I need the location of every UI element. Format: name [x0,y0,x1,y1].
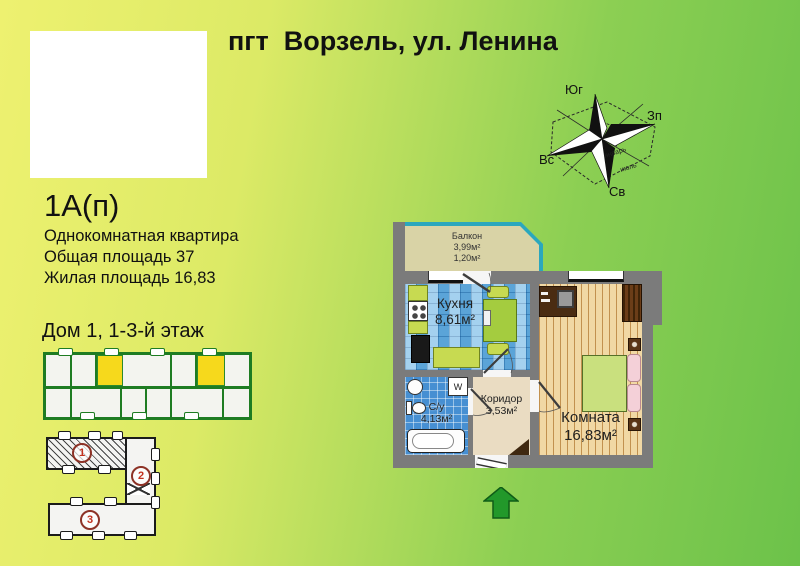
site-entrance [58,431,71,440]
schematic-wall [70,355,72,417]
schematic-balcony [80,412,95,420]
compass-rose: Юг Зп Вс Св январь июль [535,72,670,207]
apartment-total-area: Общая площадь 37 [44,247,239,268]
logo-area [30,31,207,178]
site-entrance [62,465,75,474]
schematic-balcony [58,348,73,356]
site-entrance [112,431,123,440]
apartment-living-area: Жилая площадь 16,83 [44,268,239,289]
site-entrance [60,531,73,540]
balcony-area-1: 3,99м² [405,242,529,253]
site-entrance [70,497,83,506]
site-entrance [104,497,117,506]
apartment-plan: Кухня 8,61м² С/у 4,13м² [393,271,662,468]
schematic-wall [170,355,172,417]
site-entrance [98,465,111,474]
schematic-balcony [202,348,217,356]
compass-month-jul: июль [619,162,637,174]
site-entrance [151,448,160,461]
schematic-wall [46,386,249,389]
house-floor-label: Дом 1, 1-3-й этаж [42,320,204,343]
balcony-left-wall [393,222,405,274]
schematic-balcony [104,348,119,356]
balcony-area-2: 1,20м² [405,253,529,264]
site-entrance [88,431,101,440]
apartment-code: 1А(п) [44,188,119,224]
site-block-number-3: 3 [80,510,100,530]
site-block-number-1: 1 [72,443,92,463]
site-entrance [151,496,160,509]
schematic-balcony [132,412,147,420]
highlighted-apartment-2 [197,355,225,386]
schematic-balcony [184,412,199,420]
balcony-name: Балкон [405,231,529,242]
schematic-balcony [150,348,165,356]
entrance-arrow [483,487,519,519]
flyer-page: пгт Ворзель, ул. Ленина 1А(п) Однокомнат… [0,0,800,566]
door-swings [393,271,662,468]
building-floor-schematic [43,352,252,420]
site-entrance [124,531,137,540]
balcony-floor: Балкон 3,99м² 1,20м² [405,226,539,274]
highlighted-apartment-1 [97,355,123,386]
site-block-number-2: 2 [131,466,151,486]
compass-star: январь июль [545,94,663,192]
site-entrance [92,531,105,540]
balcony: Балкон 3,99м² 1,20м² [405,222,543,274]
site-entrance [151,472,160,485]
page-title: пгт Ворзель, ул. Ленина [228,26,558,57]
apartment-type: Однокомнатная квартира [44,226,239,247]
